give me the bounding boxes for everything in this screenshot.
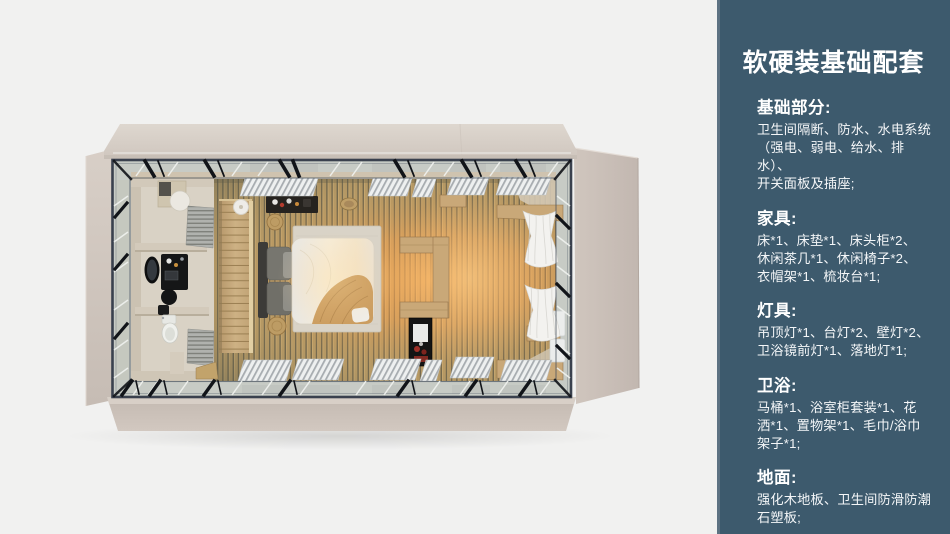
slide: 软硬装基础配套 基础部分: 卫生间隔断、防水、水电系统 （强电、弱电、给水、排水…: [0, 0, 950, 534]
right-wall-panel: [574, 148, 639, 404]
headboard-partition: [219, 199, 253, 353]
slat-panel: [186, 206, 214, 248]
slat-panel: [187, 329, 214, 366]
bedside-pouf: [268, 317, 286, 335]
toilet: [162, 315, 178, 343]
vanity-stool: [161, 289, 177, 305]
page-title: 软硬装基础配套: [737, 49, 930, 78]
section-floor-body: 强化木地板、卫生间防滑防潮 石塑板;: [757, 491, 932, 527]
section-bath: 卫浴: 马桶*1、浴室柜套装*1、花 洒*1、置物架*1、毛巾/浴巾 架子*1;: [757, 377, 932, 454]
section-lighting: 灯具: 吊顶灯*1、台灯*2、壁灯*2、 卫浴镜前灯*1、落地灯*1;: [757, 302, 932, 360]
left-wall-panel: [86, 149, 113, 406]
bed-headboard: [258, 242, 268, 318]
section-basics: 基础部分: 卫生间隔断、防水、水电系统 （强电、弱电、给水、排水）、 开关面板及…: [757, 99, 932, 194]
bathroom: [131, 179, 218, 381]
floorplan-render: [0, 0, 717, 534]
section-floor: 地面: 强化木地板、卫生间防滑防潮 石塑板;: [757, 469, 932, 527]
shower-column: [159, 182, 171, 196]
top-wall-panel: [104, 124, 577, 159]
coat-rack-shelf: [266, 196, 318, 213]
section-basics-title: 基础部分:: [757, 99, 932, 118]
section-floor-title: 地面:: [757, 469, 932, 488]
section-lighting-title: 灯具:: [757, 302, 932, 321]
section-basics-body: 卫生间隔断、防水、水电系统 （强电、弱电、给水、排水）、 开关面板及插座;: [757, 121, 932, 194]
section-lighting-body: 吊顶灯*1、台灯*2、壁灯*2、 卫浴镜前灯*1、落地灯*1;: [757, 324, 932, 360]
section-furniture: 家具: 床*1、床垫*1、床头柜*2、 休闲茶几*1、休闲椅子*2、 衣帽架*1…: [757, 210, 932, 287]
section-furniture-body: 床*1、床垫*1、床头柜*2、 休闲茶几*1、休闲椅子*2、 衣帽架*1、梳妆台…: [757, 232, 932, 287]
section-furniture-title: 家具:: [757, 210, 932, 229]
info-panel: 软硬装基础配套 基础部分: 卫生间隔断、防水、水电系统 （强电、弱电、给水、排水…: [717, 0, 950, 534]
corner-sink: [170, 191, 190, 211]
bedside-pouf: [267, 214, 283, 230]
section-bath-body: 马桶*1、浴室柜套装*1、花 洒*1、置物架*1、毛巾/浴巾 架子*1;: [757, 399, 932, 454]
section-bath-title: 卫浴:: [757, 377, 932, 396]
